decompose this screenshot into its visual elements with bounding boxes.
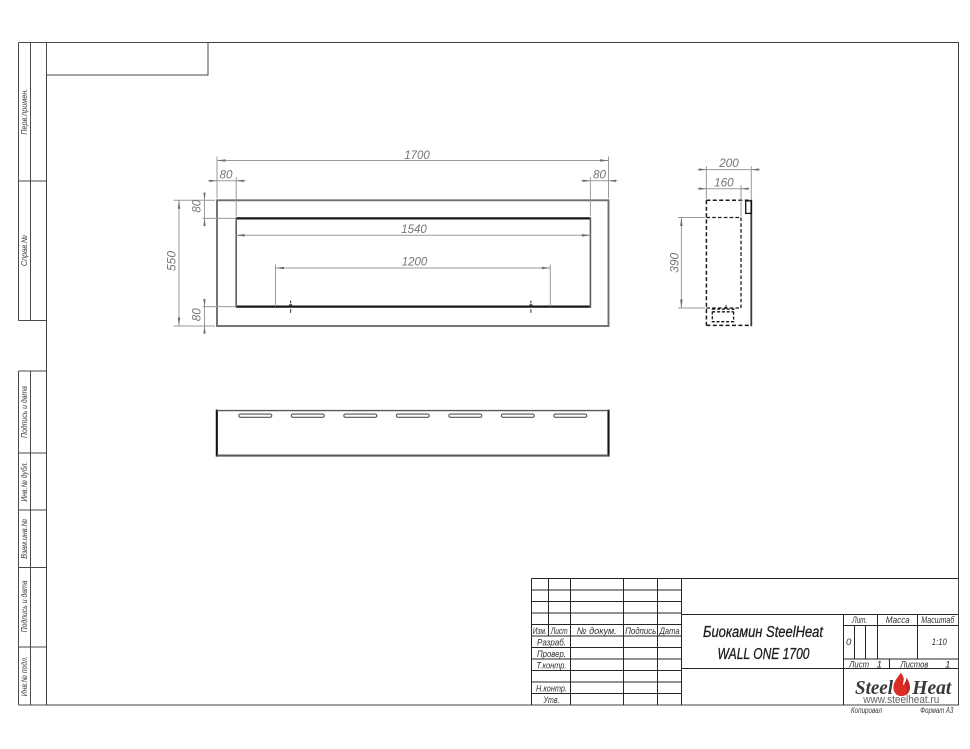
svg-text:80: 80 — [593, 167, 606, 181]
svg-text:1700: 1700 — [404, 148, 430, 162]
svg-text:Лист: Лист — [848, 659, 869, 670]
svg-text:Листов: Листов — [900, 659, 929, 670]
svg-text:80: 80 — [190, 199, 204, 212]
svg-text:80: 80 — [220, 167, 233, 181]
svg-text:1:10: 1:10 — [932, 637, 948, 648]
svg-text:Провер.: Провер. — [537, 649, 566, 660]
svg-text:Изм.: Изм. — [533, 626, 547, 637]
svg-text:Подпись и дата: Подпись и дата — [20, 580, 29, 632]
svg-text:Перв.примен.: Перв.примен. — [20, 89, 29, 135]
svg-text:www.steelheat.ru: www.steelheat.ru — [862, 694, 939, 706]
svg-text:Взам.инв.№: Взам.инв.№ — [20, 519, 29, 559]
svg-text:Разраб.: Разраб. — [537, 637, 566, 648]
svg-text:Справ.№: Справ.№ — [20, 235, 29, 266]
svg-text:Т.контр.: Т.контр. — [537, 660, 567, 671]
svg-text:№ докум.: № докум. — [577, 626, 617, 637]
svg-text:1540: 1540 — [401, 222, 427, 236]
svg-text:Инв.№ дубл.: Инв.№ дубл. — [20, 462, 29, 502]
svg-text:WALL ONE 1700: WALL ONE 1700 — [718, 646, 810, 663]
svg-text:Лит.: Лит. — [852, 615, 868, 626]
svg-text:Утв.: Утв. — [543, 695, 560, 706]
svg-text:Н.контр.: Н.контр. — [536, 683, 567, 694]
svg-text:1: 1 — [945, 659, 950, 670]
svg-text:1200: 1200 — [402, 254, 428, 268]
svg-text:Масса: Масса — [886, 615, 910, 626]
svg-text:Лист: Лист — [550, 626, 568, 637]
svg-text:Копировал: Копировал — [851, 706, 882, 715]
svg-text:Формат А3: Формат А3 — [920, 706, 953, 715]
svg-text:1: 1 — [877, 659, 882, 670]
svg-text:Биокамин SteelHeat: Биокамин SteelHeat — [703, 624, 824, 641]
svg-text:Подпись и дата: Подпись и дата — [20, 386, 29, 438]
svg-text:Инв.№ подл.: Инв.№ подл. — [20, 656, 29, 696]
svg-text:200: 200 — [718, 156, 739, 170]
svg-text:390: 390 — [668, 252, 682, 272]
svg-text:Дата: Дата — [659, 626, 680, 637]
svg-text:Масштаб: Масштаб — [921, 615, 954, 626]
svg-text:Подпись: Подпись — [625, 626, 656, 637]
svg-text:80: 80 — [190, 308, 204, 321]
svg-text:160: 160 — [714, 175, 734, 189]
svg-text:550: 550 — [164, 251, 178, 271]
svg-text:0: 0 — [846, 637, 852, 648]
